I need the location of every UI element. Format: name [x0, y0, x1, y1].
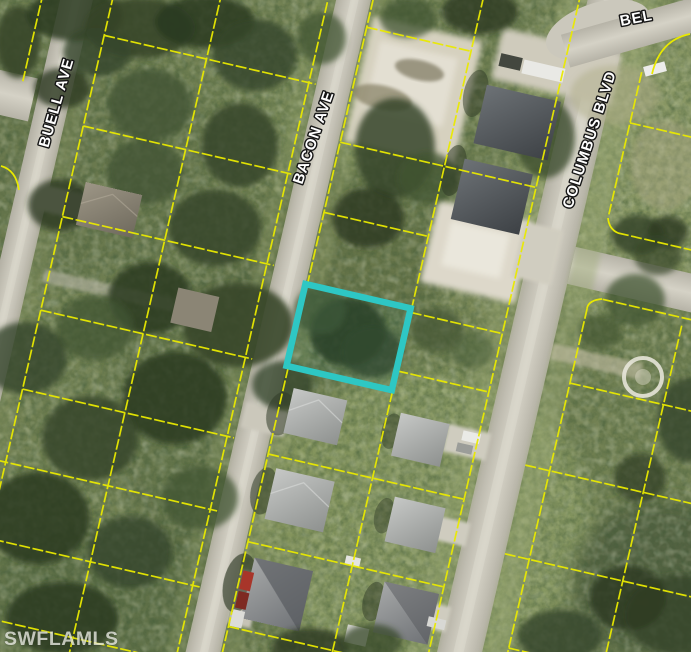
satellite-map[interactable]: BUELL AVE BACON AVE COLUMBUS BLVD BEL SW…	[0, 0, 691, 652]
watermark: SWFLAMLS	[4, 628, 118, 650]
map-canvas: BUELL AVE BACON AVE COLUMBUS BLVD BEL SW…	[0, 0, 691, 652]
